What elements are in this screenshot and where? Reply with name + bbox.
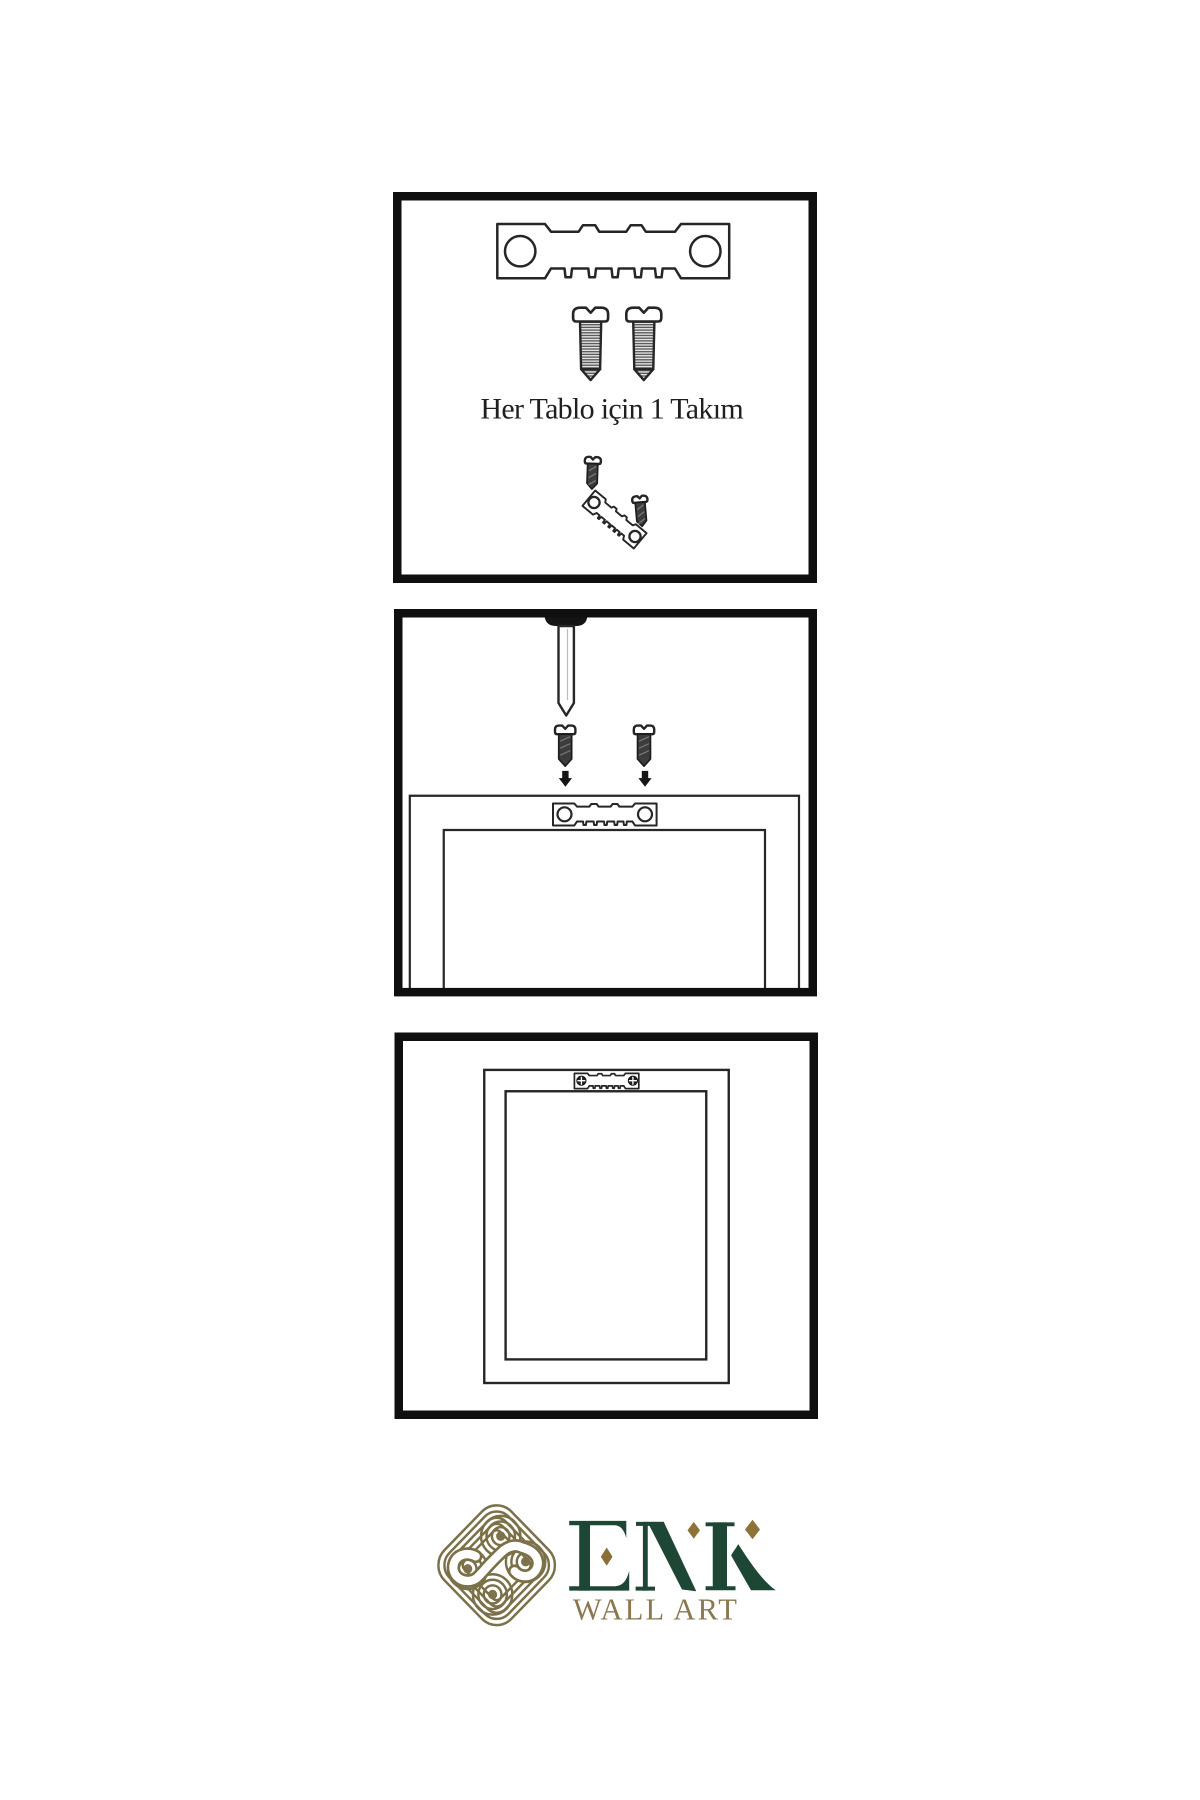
svg-text:WALL ART: WALL ART (573, 1592, 739, 1626)
svg-text:Her Tablo için 1 Takım: Her Tablo için 1 Takım (480, 393, 743, 426)
